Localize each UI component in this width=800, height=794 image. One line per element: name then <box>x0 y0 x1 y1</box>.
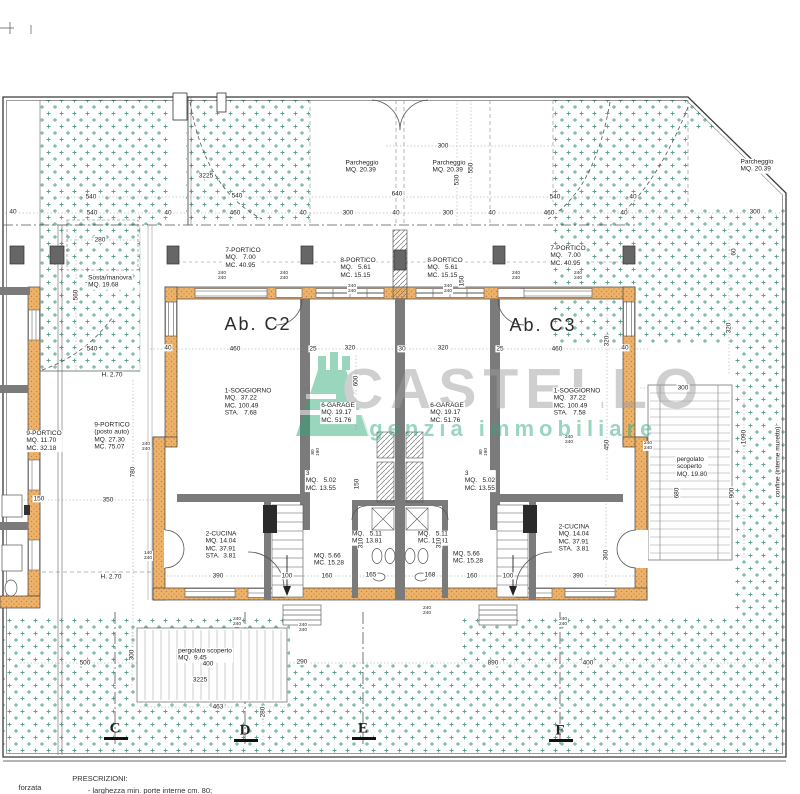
dim-160-a: 160 <box>321 572 334 579</box>
dim-350: 350 <box>102 496 115 503</box>
dim-40-c: 40 <box>163 209 172 216</box>
room-parcheggio-far: Parcheggio MQ. 20.39 <box>740 159 775 174</box>
dim-463: 463 <box>212 703 225 710</box>
dim-1090: 1090 <box>740 429 747 445</box>
dim-150-b: 150 <box>353 478 360 491</box>
dim-40-a: 40 <box>628 193 637 200</box>
dim-30: 30 <box>397 345 406 352</box>
dim-300-c: 300 <box>749 208 762 215</box>
room-parcheggio-left: Parcheggio MQ. 20.39 <box>345 160 380 175</box>
dim-40-d: 40 <box>298 209 307 216</box>
room-sosta-manovra: Sosta/manovra MQ. 19.68 <box>87 275 133 290</box>
dim-900: 900 <box>728 487 735 500</box>
pair-window-f: 240 240 <box>564 435 574 445</box>
grid-letter-d: D <box>239 723 252 740</box>
dim-168: 168 <box>424 571 437 578</box>
dim-100-b: 100 <box>502 572 515 579</box>
room-parcheggio-right: Parcheggio MQ. 20.39 <box>432 160 467 175</box>
pair-door-b: 80 190 <box>479 447 489 457</box>
pair-garage-a: 240 240 <box>347 284 357 294</box>
room-3-right: 3 MQ. 5.02 MC. 13.55 <box>464 470 496 492</box>
pair-door-a: 80 190 <box>311 447 321 457</box>
dim-300-e: 300 <box>128 649 135 662</box>
dim-25-b: 25 <box>495 345 504 352</box>
dim-320-a: 320 <box>344 344 357 351</box>
dim-680: 680 <box>673 487 680 500</box>
room-stair-right: MQ. 5.66 MC. 15.28 <box>452 551 484 566</box>
pair-window-e: 240 240 <box>141 442 151 452</box>
room-7-portico-right: 7-PORTICO MQ. 7.00 MC. 40.95 <box>549 245 586 267</box>
dim-540-c: 540 <box>549 193 562 200</box>
confine-note: confine (interne muretto) <box>774 426 781 499</box>
pair-window-b: 240 240 <box>279 271 289 281</box>
dim-460-b: 460 <box>543 209 556 216</box>
dim-300-top: 300 <box>437 142 450 149</box>
dim-280: 280 <box>94 236 107 243</box>
dim-400-a: 400 <box>202 660 215 667</box>
dim-3225-top: 3225 <box>198 172 214 179</box>
floor-plan-page: CASTELLO agenzia immobiliare 7-PORTICO M… <box>0 0 800 794</box>
pair-garage-b: 240 240 <box>443 284 453 294</box>
dim-165: 165 <box>365 571 378 578</box>
dim-320-r: 320 <box>725 322 732 335</box>
pair-window-g: 240 240 <box>643 441 653 451</box>
dim-320-c: 320 <box>603 335 610 348</box>
room-8-portico-left: 8-PORTICO MQ. 5.61 MC. 15.15 <box>339 257 376 279</box>
dim-60: 60 <box>730 247 737 256</box>
room-garage-left: 6-GARAGE MQ. 19.17 MC. 51.76 <box>320 402 356 424</box>
dim-290: 290 <box>296 658 309 665</box>
dim-40-f: 40 <box>487 209 496 216</box>
room-bath-left: MQ. 5.11 MC. 13.81 <box>351 531 383 546</box>
dim-3225-bottom: 3225 <box>192 676 208 683</box>
room-soggiorno-right: 1-SOGGIORNO MQ. 37.22 MC. 100.49 STA. 7.… <box>553 387 602 416</box>
room-garage-right: 6-GARAGE MQ. 19.17 MC. 51.76 <box>429 402 465 424</box>
dim-560: 560 <box>72 289 79 302</box>
dim-640: 640 <box>391 190 404 197</box>
dim-550: 550 <box>467 162 474 175</box>
dim-320-b: 320 <box>437 344 450 351</box>
dim-280-v: 280 <box>259 706 266 719</box>
dim-600: 600 <box>352 375 359 388</box>
dim-360: 360 <box>602 549 609 562</box>
room-cucina-right: 2-CUCINA MQ. 14.04 MC. 37.91 STA. 3.81 <box>558 523 591 552</box>
dim-500: 500 <box>79 659 92 666</box>
dim-310-b: 310 <box>435 537 442 550</box>
grid-letter-f: F <box>554 723 565 740</box>
room-cucina-left: 2-CUCINA MQ. 14.04 MC. 37.91 STA. 3.81 <box>205 530 238 559</box>
room-pergolato-right: pergolato scoperto MQ. 19.80 <box>676 456 708 478</box>
pair-window-c: 240 240 <box>511 271 521 281</box>
room-3-left: 3 MQ. 5.02 MC. 13.55 <box>305 470 337 492</box>
pair-window-k: 240 240 <box>422 606 432 616</box>
dim-40-b: 40 <box>8 208 17 215</box>
room-9-portico-posto: 9-PORTICO (posto auto) MQ. 27.30 MC. 75.… <box>93 421 130 450</box>
pair-window-j: 240 240 <box>298 623 308 633</box>
dim-390-a: 390 <box>212 572 225 579</box>
pair-window-a: 240 240 <box>217 271 227 281</box>
dim-40-e: 40 <box>391 209 400 216</box>
dim-460-d: 460 <box>551 345 564 352</box>
pair-window-i: 240 240 <box>232 617 242 627</box>
dim-540-d: 540 <box>86 209 99 216</box>
dim-300-a: 300 <box>342 209 355 216</box>
note-larghezza: - larghezza min. porte interne cm. 80; <box>87 787 213 794</box>
dim-450: 450 <box>603 439 610 452</box>
dim-40-h: 40 <box>163 344 172 351</box>
note-forzata: forzata <box>18 784 43 792</box>
height-note-1: H. 2.70 <box>101 371 124 378</box>
pair-window-h: 140 240 <box>143 551 153 561</box>
note-prescrizioni: PRESCRIZIONI: <box>71 775 128 783</box>
dim-530: 530 <box>453 174 460 187</box>
dim-540-b: 540 <box>231 192 244 199</box>
dim-540-e: 540 <box>86 345 99 352</box>
dim-890: 890 <box>487 659 500 666</box>
dim-310-a: 310 <box>357 537 364 550</box>
height-note-2: H. 2.70 <box>100 573 123 580</box>
dim-300-b: 300 <box>442 209 455 216</box>
dim-390-b: 390 <box>572 572 585 579</box>
dim-150-c: 150 <box>33 495 46 502</box>
room-9-portico-small: 9-PORTICO MQ. 11.70 MC. 32.18 <box>25 430 62 452</box>
dim-40-g: 40 <box>619 209 628 216</box>
room-stair-left: MQ. 5.66 MC. 15.28 <box>313 553 345 568</box>
pair-window-d: 240 240 <box>573 271 583 281</box>
dim-300-d: 300 <box>677 384 690 391</box>
grid-letter-e: E <box>357 721 369 738</box>
unit-label-c2: Ab. C2 <box>223 314 292 334</box>
dim-160-b: 160 <box>466 572 479 579</box>
dim-150-a: 150 <box>458 275 465 288</box>
grid-letter-c: C <box>109 721 122 738</box>
dim-460-c: 460 <box>229 345 242 352</box>
dim-400-b: 400 <box>582 659 595 666</box>
room-bath-right: MQ. 5.11 MC. 13.81 <box>417 531 449 546</box>
unit-label-c3: Ab. C3 <box>508 315 577 335</box>
dim-780: 780 <box>129 466 136 479</box>
plan-labels-layer: 7-PORTICO MQ. 7.00 MC. 40.958-PORTICO MQ… <box>0 0 800 794</box>
room-soggiorno-left: 1-SOGGIORNO MQ. 37.22 MC. 100.49 STA. 7.… <box>224 387 273 416</box>
dim-40-i: 40 <box>620 344 629 351</box>
dim-100-a: 100 <box>281 572 294 579</box>
room-7-portico-left: 7-PORTICO MQ. 7.00 MC. 40.95 <box>224 247 261 269</box>
dim-540-a: 540 <box>85 193 98 200</box>
dim-25-a: 25 <box>308 345 317 352</box>
pair-window-l: 240 240 <box>558 617 568 627</box>
dim-460-a: 460 <box>229 209 242 216</box>
